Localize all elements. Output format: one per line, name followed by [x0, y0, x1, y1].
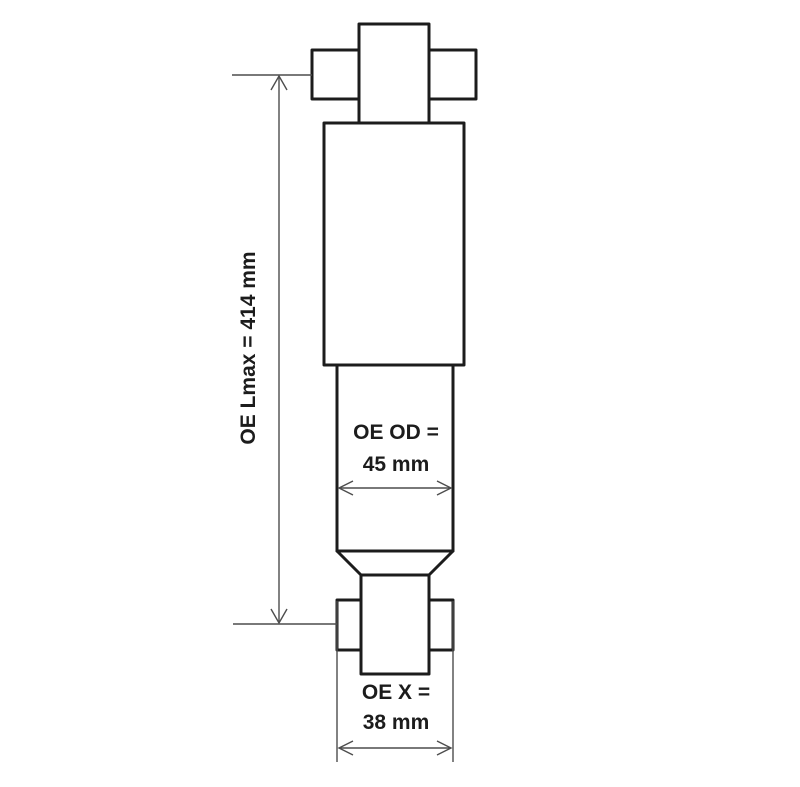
od-label-line2: 45 mm — [353, 449, 439, 481]
x-dimension-label: OE X = 38 mm — [362, 678, 430, 738]
taper-transition — [337, 551, 453, 575]
bottom-mount-left-ear — [337, 600, 361, 650]
od-label-line1: OE OD = — [353, 417, 439, 449]
bottom-mount-right-ear — [429, 600, 453, 650]
top-mount-pin — [359, 24, 429, 123]
od-dimension-label: OE OD = 45 mm — [353, 417, 439, 481]
top-mount-right-ear — [429, 50, 476, 99]
diagram-canvas: OE Lmax = 414 mm OE OD = 45 mm OE X = 38… — [0, 0, 800, 787]
lmax-dimension-label: OE Lmax = 414 mm — [237, 251, 261, 444]
x-label-line2: 38 mm — [362, 708, 430, 738]
top-mount-left-ear — [312, 50, 359, 99]
main-body-cylinder — [324, 123, 464, 365]
x-label-line1: OE X = — [362, 678, 430, 708]
bottom-mount-block — [361, 575, 429, 674]
shock-absorber-drawing — [0, 0, 800, 787]
